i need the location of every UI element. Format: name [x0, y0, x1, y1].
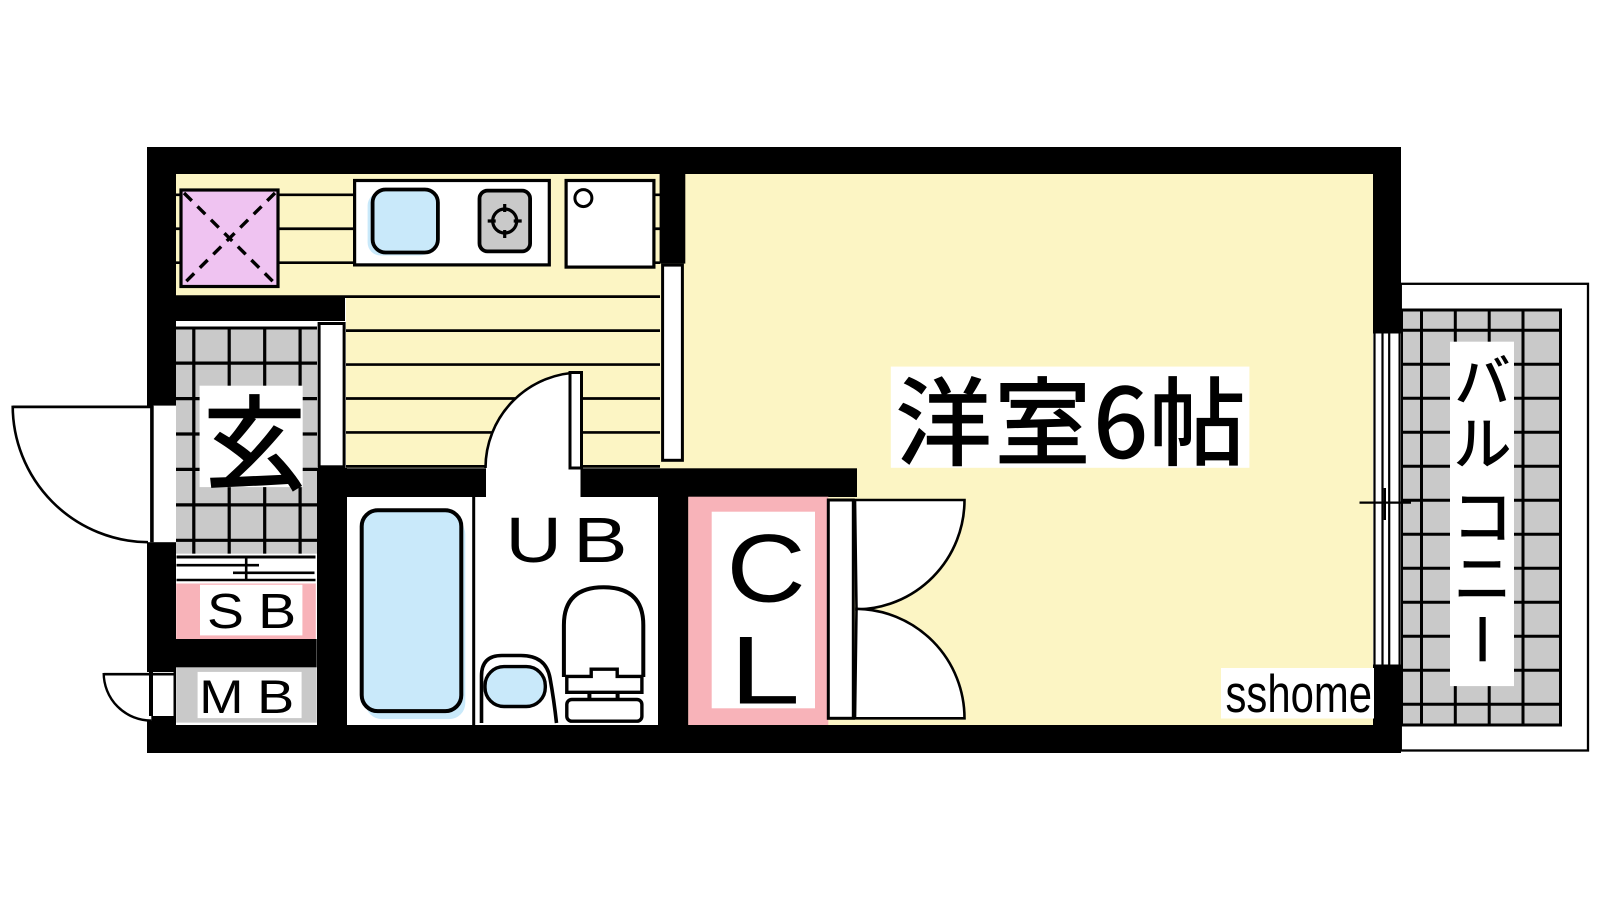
- svg-text:B: B: [258, 585, 296, 639]
- svg-text:C: C: [727, 513, 806, 622]
- svg-text:B: B: [573, 504, 628, 576]
- svg-text:U: U: [506, 505, 562, 577]
- svg-text:B: B: [257, 670, 294, 723]
- svg-text:L: L: [730, 616, 801, 724]
- svg-text:sshome: sshome: [1226, 665, 1373, 724]
- svg-text:S: S: [207, 585, 244, 639]
- svg-text:M: M: [199, 671, 243, 723]
